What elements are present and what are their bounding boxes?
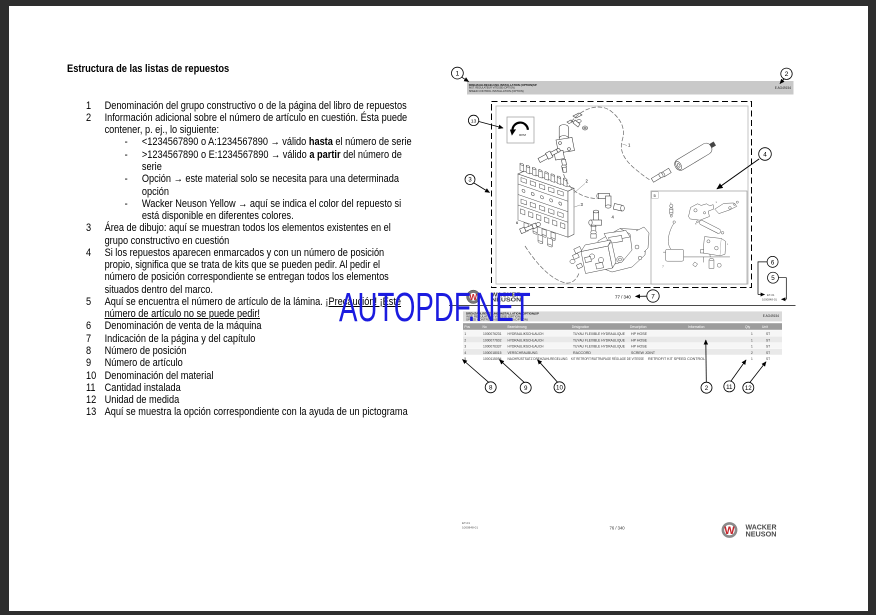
svg-text:E AG49154: E AG49154 — [763, 314, 780, 318]
svg-text:1: 1 — [464, 332, 466, 336]
svg-text:RACCORD: RACCORD — [573, 351, 592, 355]
svg-text:VERSCHRAUBUNG: VERSCHRAUBUNG — [508, 351, 539, 355]
svg-text:10: 10 — [556, 385, 563, 392]
svg-text:RETROFIT KIT SPEED CONTROL: RETROFIT KIT SPEED CONTROL — [648, 357, 705, 361]
svg-text:5: 5 — [464, 357, 466, 361]
svg-text:3: 3 — [464, 345, 466, 349]
svg-text:HP HOSE: HP HOSE — [631, 338, 647, 342]
svg-text:9: 9 — [524, 385, 528, 392]
svg-text:HYDRAULIKSCHLAUCH: HYDRAULIKSCHLAUCH — [508, 345, 545, 349]
svg-text:1000077602: 1000077602 — [483, 338, 502, 342]
svg-text:1000115094: 1000115094 — [483, 357, 502, 361]
svg-text:ST: ST — [766, 351, 770, 355]
svg-text:ST: ST — [766, 332, 770, 336]
svg-text:7: 7 — [651, 293, 655, 300]
svg-text:1: 1 — [751, 345, 753, 349]
svg-text:RPM: RPM — [519, 133, 526, 137]
svg-text:1: 1 — [628, 143, 631, 148]
svg-text:Désignation: Désignation — [572, 325, 590, 329]
svg-text:Description: Description — [630, 325, 647, 329]
svg-text:HP HOSE: HP HOSE — [631, 332, 647, 336]
svg-text:ST: ST — [766, 345, 770, 349]
svg-text:1000076337: 1000076337 — [483, 345, 502, 349]
svg-text:1: 1 — [751, 332, 753, 336]
svg-text:8: 8 — [489, 385, 493, 392]
svg-text:Unit: Unit — [762, 325, 768, 329]
svg-text:ET-01: ET-01 — [462, 521, 470, 525]
svg-text:TUYAU FLEXIBLE HYDRAULIQUE: TUYAU FLEXIBLE HYDRAULIQUE — [573, 338, 625, 342]
svg-text:2: 2 — [464, 338, 466, 342]
svg-text:ST: ST — [766, 338, 770, 342]
svg-text:HYDRAULIKSCHLAUCH: HYDRAULIKSCHLAUCH — [508, 332, 545, 336]
svg-text:3: 3 — [581, 202, 584, 207]
svg-text:1: 1 — [751, 338, 753, 342]
svg-text:5: 5 — [771, 275, 775, 282]
svg-text:76 / 340: 76 / 340 — [610, 525, 626, 530]
svg-text:W: W — [724, 525, 735, 537]
svg-text:1000076231: 1000076231 — [483, 332, 502, 336]
svg-text:77 / 340: 77 / 340 — [615, 294, 631, 299]
svg-text:12: 12 — [745, 385, 752, 392]
svg-text:1: 1 — [751, 357, 753, 361]
svg-text:TUYAU FLEXIBLE HYDRAULIQUE: TUYAU FLEXIBLE HYDRAULIQUE — [573, 332, 625, 336]
svg-text:ET-01: ET-01 — [767, 293, 775, 297]
svg-text:13: 13 — [471, 118, 477, 124]
svg-text:11: 11 — [726, 384, 733, 391]
svg-text:Information: Information — [688, 325, 705, 329]
svg-text:SCREW JOINT: SCREW JOINT — [631, 351, 655, 355]
svg-text:4: 4 — [612, 215, 615, 220]
svg-text:NEUSON: NEUSON — [746, 530, 777, 539]
svg-text:SPEED CONTROL INSTALLATION (OP: SPEED CONTROL INSTALLATION (OPTION) — [469, 89, 524, 93]
svg-text:6: 6 — [516, 220, 519, 225]
svg-text:E AG49154: E AG49154 — [775, 86, 792, 90]
svg-text:1000018015: 1000018015 — [483, 351, 502, 355]
svg-text:TUYAU FLEXIBLE HYDRAULIQUE: TUYAU FLEXIBLE HYDRAULIQUE — [573, 345, 625, 349]
svg-text:2: 2 — [751, 351, 753, 355]
svg-text:1000848-01: 1000848-01 — [462, 526, 478, 530]
svg-text:2: 2 — [705, 385, 709, 392]
svg-text:ST: ST — [766, 357, 770, 361]
svg-text:2: 2 — [785, 71, 789, 78]
svg-text:1000848-01: 1000848-01 — [762, 298, 777, 302]
svg-text:6: 6 — [771, 259, 775, 266]
svg-text:KIT RETROFIT/RATTRAPAGE RÉGLAG: KIT RETROFIT/RATTRAPAGE RÉGLAGE DE VITES… — [571, 356, 644, 361]
svg-text:4: 4 — [763, 151, 767, 158]
svg-text:4: 4 — [464, 351, 466, 355]
svg-text:Qty: Qty — [745, 325, 750, 329]
svg-text:HP HOSE: HP HOSE — [631, 345, 647, 349]
svg-text:1: 1 — [456, 71, 460, 78]
svg-text:2: 2 — [586, 179, 589, 184]
svg-text:HYDRAULIKSCHLAUCH: HYDRAULIKSCHLAUCH — [508, 338, 545, 342]
